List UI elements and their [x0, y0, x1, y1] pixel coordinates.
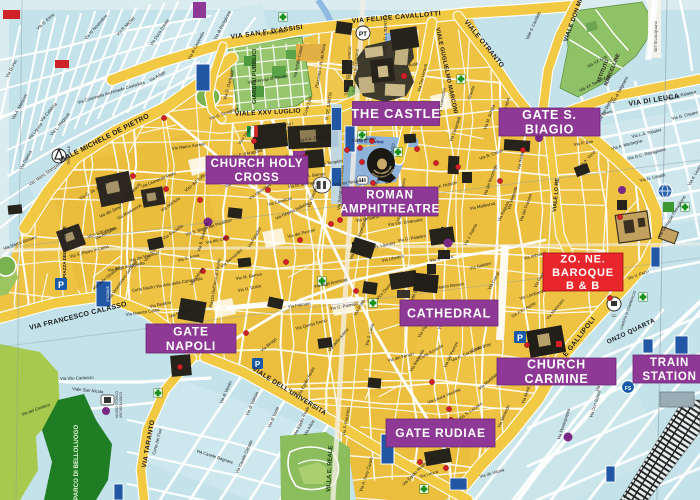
- svg-text:B & B: B & B: [566, 280, 600, 292]
- svg-text:GATE RUDIAE: GATE RUDIAE: [395, 426, 486, 440]
- svg-text:ZO. NE.: ZO. NE.: [560, 254, 605, 266]
- svg-text:GIARDINI PUBBLICI: GIARDINI PUBBLICI: [252, 49, 258, 104]
- svg-text:PIAZZA DEL BASTIONE: PIAZZA DEL BASTIONE: [62, 226, 67, 278]
- svg-text:PT: PT: [359, 31, 367, 38]
- svg-text:BIAGIO: BIAGIO: [525, 123, 574, 137]
- svg-text:GATE S.: GATE S.: [522, 108, 577, 122]
- svg-text:ROMAN: ROMAN: [366, 190, 413, 202]
- svg-text:AMPHITHEATRE: AMPHITHEATRE: [340, 203, 440, 215]
- svg-text:GATE: GATE: [173, 325, 209, 339]
- svg-text:NAPOLI: NAPOLI: [166, 339, 216, 353]
- svg-text:CHURCH: CHURCH: [527, 358, 586, 372]
- svg-text:P: P: [58, 280, 64, 290]
- svg-text:FS: FS: [625, 386, 632, 392]
- svg-text:P: P: [517, 333, 523, 343]
- svg-text:BAROQUE: BAROQUE: [552, 267, 614, 279]
- svg-text:CROSS: CROSS: [235, 172, 280, 184]
- svg-text:ARCHEOLOGICO: ARCHEOLOGICO: [119, 391, 123, 418]
- svg-text:STATION: STATION: [642, 371, 696, 383]
- svg-text:PARCO DI BELLOLUOGO: PARCO DI BELLOLUOGO: [73, 425, 80, 500]
- svg-text:CHURCH HOLY: CHURCH HOLY: [211, 158, 304, 170]
- svg-text:TRAIN: TRAIN: [650, 357, 689, 369]
- svg-text:CC: CC: [612, 314, 617, 318]
- svg-text:CARMINE: CARMINE: [525, 372, 589, 386]
- svg-text:THE CASTLE: THE CASTLE: [351, 106, 441, 121]
- svg-text:CATHEDRAL: CATHEDRAL: [407, 306, 491, 320]
